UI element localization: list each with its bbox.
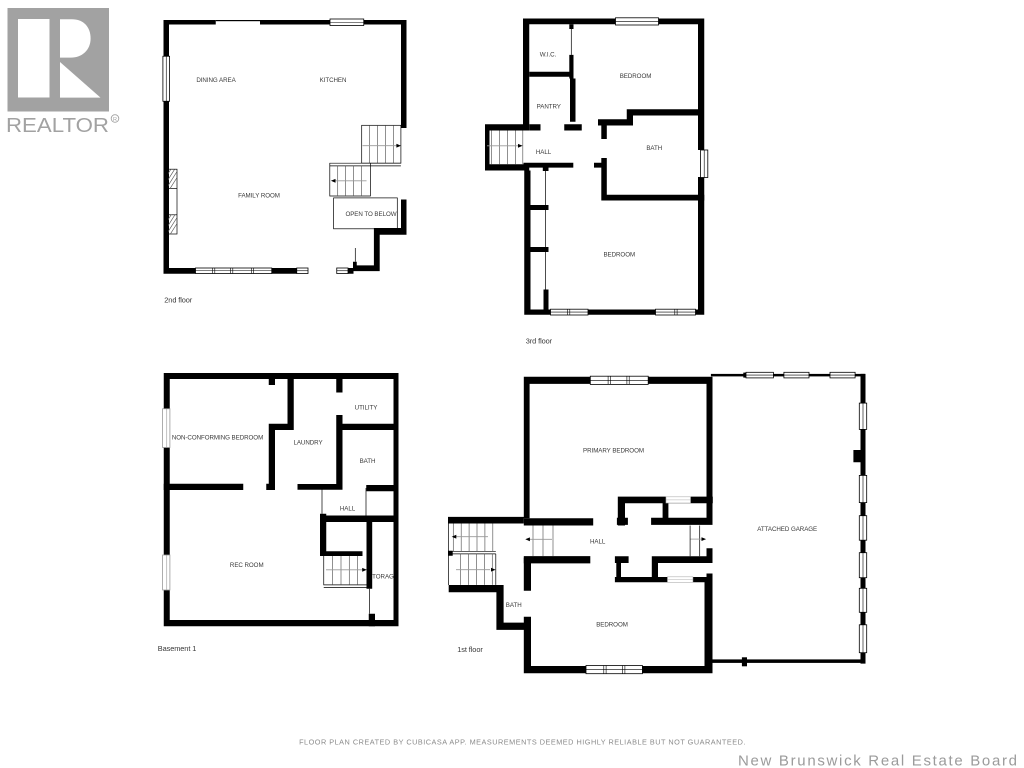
svg-text:2nd floor: 2nd floor (164, 296, 193, 305)
svg-text:3rd floor: 3rd floor (526, 337, 553, 346)
svg-text:New Brunswick Real Estate Boar: New Brunswick Real Estate Board (738, 753, 1017, 768)
svg-text:KITCHEN: KITCHEN (320, 77, 347, 84)
svg-text:UTILITY: UTILITY (355, 405, 378, 412)
svg-text:BATH: BATH (360, 458, 376, 465)
svg-text:R: R (113, 117, 117, 123)
svg-text:BEDROOM: BEDROOM (603, 252, 635, 259)
svg-text:OPEN TO BELOW: OPEN TO BELOW (345, 211, 396, 218)
svg-text:DINING AREA: DINING AREA (196, 77, 236, 84)
svg-text:ATTACHED GARAGE: ATTACHED GARAGE (757, 526, 817, 533)
svg-text:FAMILY ROOM: FAMILY ROOM (238, 193, 280, 200)
svg-text:STORAGE: STORAGE (368, 574, 398, 581)
svg-text:PRIMARY BEDROOM: PRIMARY BEDROOM (583, 448, 644, 455)
svg-text:LAUNDRY: LAUNDRY (293, 440, 322, 447)
svg-text:BEDROOM: BEDROOM (620, 73, 652, 80)
svg-text:REALTOR: REALTOR (6, 115, 109, 137)
svg-text:Basement 1: Basement 1 (158, 644, 196, 653)
svg-text:NON-CONFORMING BEDROOM: NON-CONFORMING BEDROOM (172, 435, 263, 442)
svg-text:FLOOR PLAN CREATED BY CUBICASA: FLOOR PLAN CREATED BY CUBICASA APP. MEAS… (299, 738, 746, 747)
svg-text:PANTRY: PANTRY (537, 104, 561, 111)
svg-text:HALL: HALL (340, 506, 356, 513)
svg-text:HALL: HALL (590, 539, 606, 546)
svg-text:W.I.C.: W.I.C. (540, 52, 557, 59)
svg-text:HALL: HALL (536, 149, 552, 156)
svg-text:BATH: BATH (506, 602, 522, 609)
svg-text:REC ROOM: REC ROOM (230, 562, 264, 569)
svg-text:1st floor: 1st floor (457, 645, 483, 654)
svg-text:BEDROOM: BEDROOM (596, 621, 628, 628)
svg-text:BATH: BATH (646, 145, 662, 152)
